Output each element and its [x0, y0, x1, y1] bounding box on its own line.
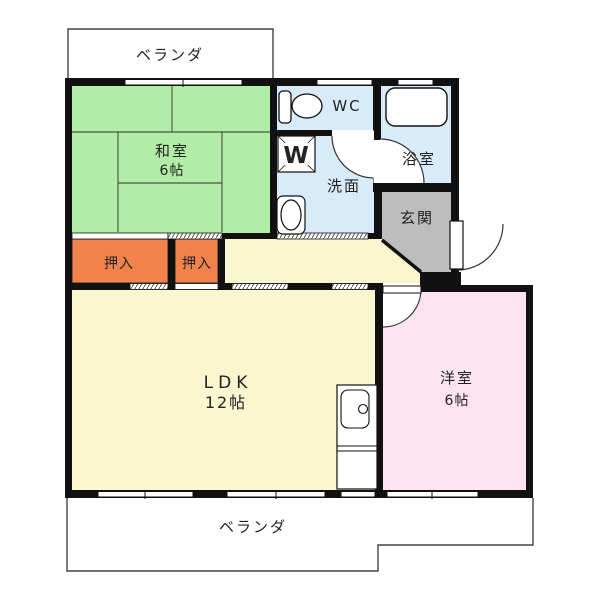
label-ldk-size: 12帖: [205, 393, 247, 412]
label-balcony-top: ベランダ: [136, 46, 204, 64]
floor-plan: ベランダ 和室 6帖 WC 浴室 W 洗面 玄関 押入 押入 LDK 12帖 洋…: [0, 0, 600, 600]
label-yoshitsu-size: 6帖: [445, 393, 470, 409]
label-yoshitsu: 洋室: [440, 369, 474, 387]
label-bath: 浴室: [402, 150, 436, 168]
label-balcony-bottom: ベランダ: [219, 518, 287, 536]
room-yoshitsu: [383, 292, 526, 490]
washbasin-icon: [277, 196, 305, 234]
label-washitsu-size: 6帖: [160, 163, 185, 179]
label-ldk: LDK: [204, 373, 253, 393]
label-washroom: 洗面: [327, 177, 361, 195]
label-entrance: 玄関: [400, 209, 434, 227]
label-washer-w: W: [283, 143, 308, 169]
label-wc: WC: [332, 97, 361, 115]
front-door-leaf: [450, 221, 463, 269]
bedroom-door-leaf: [383, 286, 421, 293]
kitchen-sink-icon: [337, 385, 377, 489]
bathtub-icon: [386, 88, 447, 126]
label-washitsu: 和室: [155, 142, 189, 160]
label-closet-2: 押入: [182, 256, 212, 272]
label-closet-1: 押入: [104, 256, 134, 272]
